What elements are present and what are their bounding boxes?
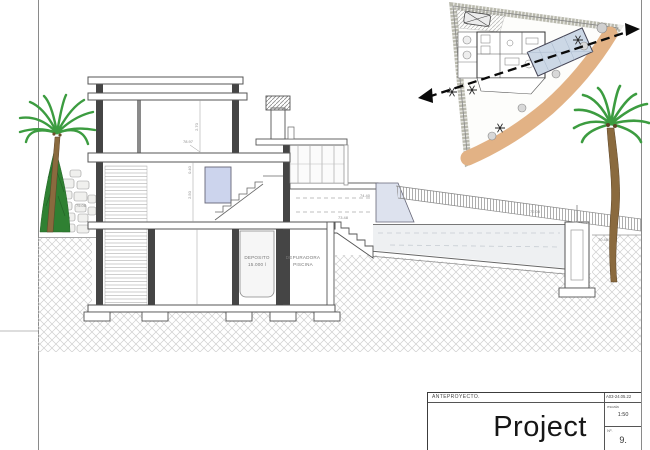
sheet-number-label: Nº.: [607, 428, 612, 433]
level-terrace: 74.40: [360, 193, 371, 198]
exterior-steps: [333, 222, 373, 258]
dim-slab: 0.40: [187, 165, 192, 174]
roof-slab: [88, 93, 247, 100]
level-stairs-top: 73.48: [338, 215, 349, 220]
drawing-sheet: 2.70 0.40 2.50 78.97 75.06 73.40 73.48 7…: [0, 0, 650, 450]
terrace-and-retaining-wall: [290, 183, 414, 222]
house-section: [84, 77, 348, 321]
room-label-deposito: DEPOSITO: [244, 255, 269, 260]
scale-value: 1:50: [605, 412, 641, 418]
section-arrow-right: [625, 23, 640, 36]
chimney: [266, 96, 294, 139]
first-floor-slab: [88, 153, 290, 162]
section-drawing: 2.70 0.40 2.50 78.97 75.06 73.40 73.48 7…: [0, 0, 650, 450]
project-phase-label: ANTEPROYECTO.: [428, 393, 604, 402]
site-plan-inset: [418, 6, 640, 162]
project-title: Project: [428, 411, 604, 444]
dim-ground-floor: 2.50: [187, 190, 192, 199]
basement-slab: [88, 305, 335, 312]
document-code: A03-24.05.22: [604, 393, 641, 402]
section-arrow-left: [418, 88, 433, 103]
level-left-upper: 75.06: [76, 203, 87, 208]
scale-label: escala: [607, 404, 619, 409]
level-roof: 78.97: [183, 139, 194, 144]
level-pool-wall: 72.08: [530, 209, 541, 214]
ground-floor-slab: [88, 222, 335, 229]
window: [205, 167, 231, 203]
dim-upper-floor: 2.70: [194, 122, 199, 131]
room-label-deposito-capacity: 15.000 l: [248, 262, 266, 267]
pergola-slab: [88, 77, 243, 84]
room-label-piscina: PISCINA: [293, 262, 314, 267]
sheet-number: 9.: [605, 435, 641, 445]
room-label-depuradora: DEPURADORA: [286, 255, 321, 260]
stairwell: [105, 166, 147, 305]
level-terrain-right: 70.48: [598, 237, 609, 242]
title-block: ANTEPROYECTO. A03-24.05.22 Project escal…: [427, 392, 641, 450]
